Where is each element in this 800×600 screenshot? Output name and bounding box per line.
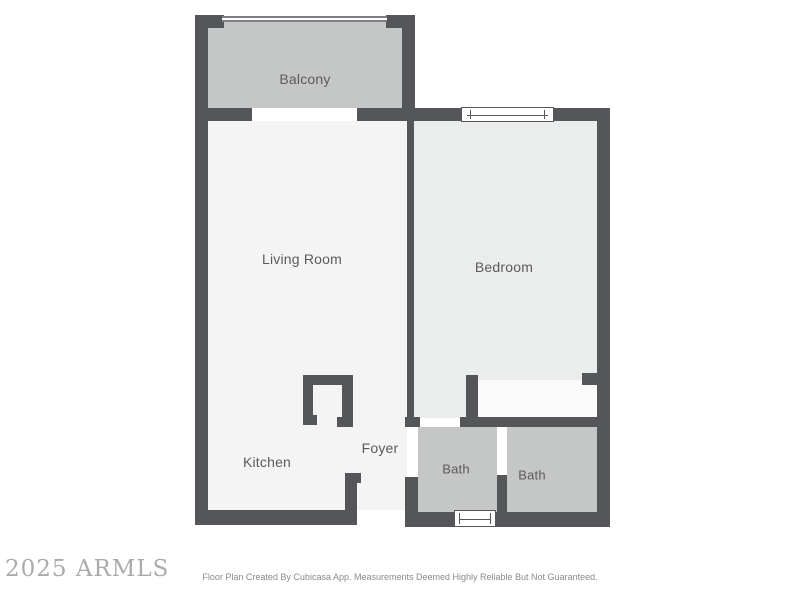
- left-exterior-wall: [195, 108, 208, 525]
- closet-left-wall: [466, 375, 478, 427]
- divider-corner-block: [405, 417, 420, 427]
- floor-plan-canvas: Balcony Living Room Bedroom Kitchen Foye…: [0, 0, 800, 600]
- foyer-bath-wall-lower: [405, 477, 418, 525]
- balcony-corner-right: [386, 15, 415, 28]
- footer-disclaimer: Floor Plan Created By Cubicasa App. Meas…: [0, 572, 800, 582]
- right-exterior-wall: [597, 108, 610, 527]
- room-label-bedroom: Bedroom: [475, 259, 533, 275]
- closet-bottom-wall: [460, 417, 597, 427]
- kitchen-nook-right-foot: [337, 417, 353, 427]
- room-label-balcony: Balcony: [279, 71, 330, 87]
- bottom-wall-segment-a: [195, 510, 357, 525]
- foyer-left-wall-foot: [345, 473, 361, 483]
- kitchen-nook-left-foot: [303, 415, 317, 425]
- balcony-left-wall: [195, 15, 208, 121]
- bedroom-window: [461, 107, 554, 122]
- closet-floor: [478, 380, 597, 418]
- window-glass-line: [467, 115, 548, 116]
- balcony-railing: [222, 16, 387, 22]
- window-glass-line: [460, 519, 490, 520]
- bath-divider-wall: [497, 475, 507, 527]
- balcony-floor: [208, 21, 402, 108]
- bath-window: [454, 510, 496, 527]
- room-label-kitchen: Kitchen: [243, 454, 291, 470]
- bottom-wall-segment-c: [495, 512, 610, 527]
- room-label-foyer: Foyer: [362, 440, 399, 456]
- balcony-right-wall: [402, 15, 415, 121]
- room-label-living-room: Living Room: [262, 251, 342, 267]
- room-label-bath-1: Bath: [442, 462, 470, 477]
- room-label-bath-2: Bath: [518, 468, 546, 483]
- living-bedroom-divider-wall: [407, 121, 414, 417]
- balcony-corner-left: [195, 15, 224, 28]
- closet-right-stub: [582, 373, 597, 385]
- top-wall-segment-b: [357, 108, 462, 121]
